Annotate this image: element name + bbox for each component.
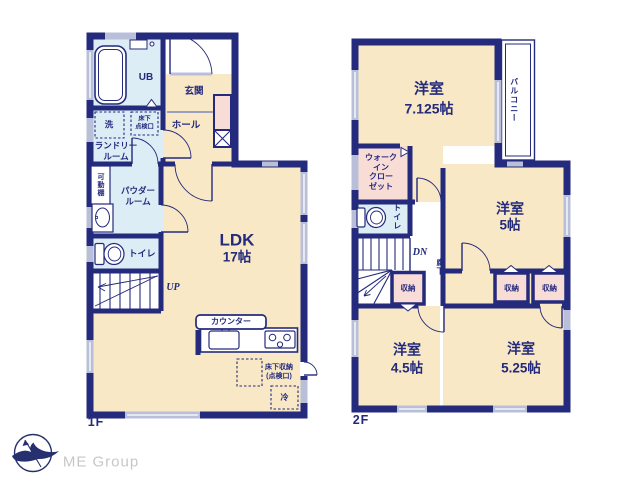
- floor2-room-fills: [355, 42, 567, 409]
- shoe-counter-x-box: [214, 130, 231, 147]
- kitchen-side-exterior-door: [304, 362, 317, 376]
- label-powder-room: パウダー ルーム: [121, 185, 155, 206]
- label-toilet-1f: トイレ: [128, 248, 155, 259]
- stove-icon: [265, 331, 295, 348]
- label-bedroom7-size: 7.125帖: [404, 100, 453, 118]
- label-closet-a: 収納: [504, 283, 519, 292]
- logo-company-name: ME Group: [63, 454, 139, 473]
- label-wash: 洗: [105, 120, 114, 131]
- label-ldk-size: 17帖: [223, 250, 252, 267]
- bathtub-icon: [95, 46, 126, 104]
- label-floor-1f: 1F: [88, 415, 105, 431]
- label-stairs-dn: DN: [413, 247, 427, 260]
- label-laundry-room: ランドリー ルーム: [95, 140, 138, 161]
- label-bedroom5-size: 5帖: [499, 218, 520, 235]
- compass-bird-logo-icon: [12, 435, 59, 472]
- label-bedroom45-size: 4.5帖: [391, 361, 423, 378]
- label-bedroom5: 洋室: [496, 200, 524, 218]
- floorplan-drawing: [0, 0, 640, 480]
- label-genkan: 玄関: [184, 86, 203, 98]
- label-underfloor-hatch: 床下 点検口: [135, 115, 154, 131]
- toilet-2f-icon: [357, 208, 386, 228]
- entrance-porch: [166, 38, 232, 74]
- label-hall: ホール: [172, 120, 201, 132]
- label-closet-b: 収納: [542, 283, 557, 292]
- label-hallway: 廊下: [435, 259, 444, 276]
- label-bedroom525: 洋室: [507, 340, 535, 358]
- label-bedroom45: 洋室: [393, 341, 421, 359]
- label-stairs-up: UP: [166, 282, 179, 295]
- label-walk-in-closet: ウォーク イン クロー ゼット: [365, 153, 397, 191]
- label-underfloor-storage: 床下収納 (点検口): [265, 363, 293, 381]
- shoe-cabinet-box: [214, 95, 231, 130]
- label-bedroom7: 洋室: [414, 81, 444, 100]
- label-toilet-2f: トイレ: [392, 204, 402, 231]
- toilet-1f-icon: [95, 244, 124, 265]
- floorplan-page: UB 玄関 ホール 洗 床下 点検口 ランドリー ルーム 可動棚 パウダー ルー…: [0, 0, 640, 480]
- label-ub: UB: [139, 72, 153, 85]
- label-ldk: LDK: [220, 229, 255, 250]
- label-bedroom525-size: 5.25帖: [501, 361, 541, 378]
- label-closet-c: 収納: [401, 283, 416, 292]
- label-movable-shelf: 可動棚: [96, 173, 105, 197]
- label-counter: カウンター: [211, 317, 251, 327]
- label-fridge: 冷: [281, 393, 289, 403]
- label-balcony: バルコニー: [509, 78, 519, 123]
- powder-sink-icon: [92, 204, 113, 232]
- label-floor-2f: 2F: [353, 413, 370, 429]
